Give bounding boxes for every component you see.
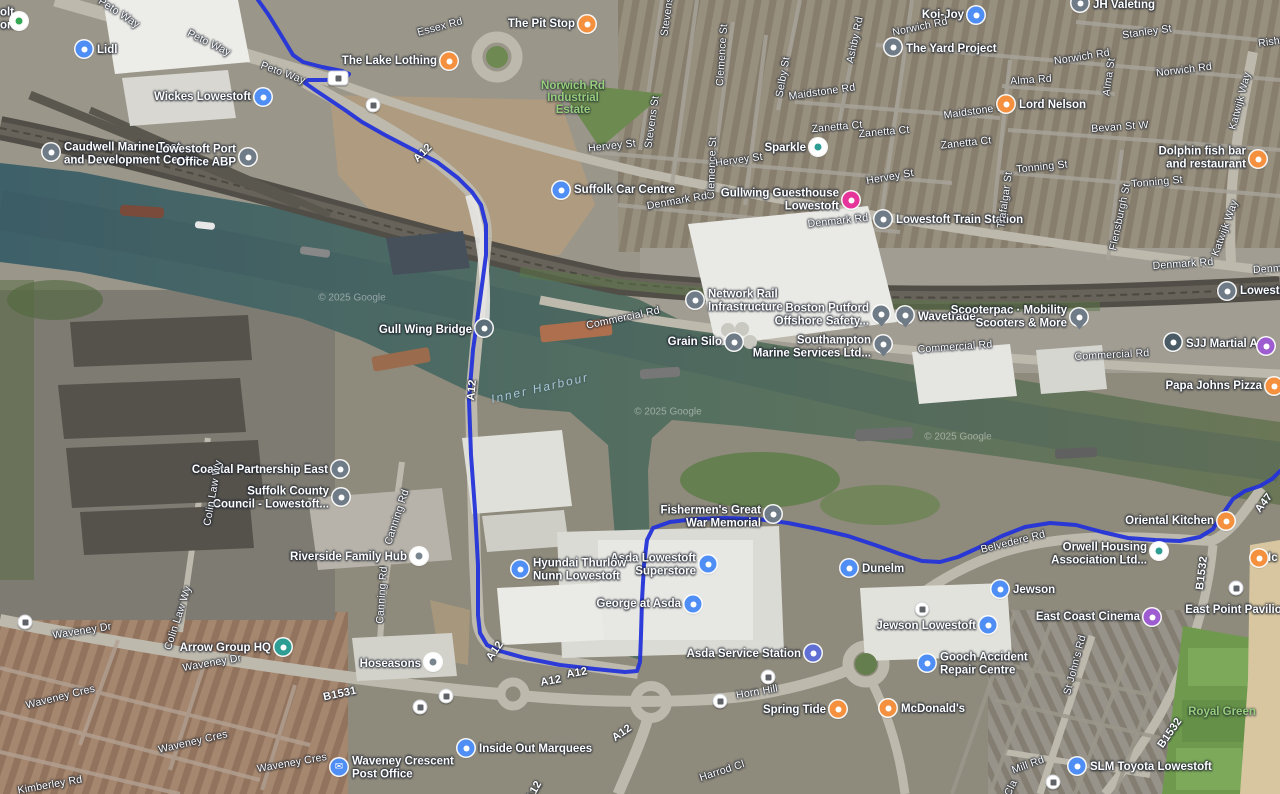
jewson-label-line: Jewson (1013, 584, 1055, 597)
lowestoft-port-office-abp-dot (245, 154, 251, 160)
hoseasons-icon[interactable] (425, 654, 442, 671)
jh-valeting-label-line: JH Valeting (1093, 0, 1155, 11)
speed-camera-icon[interactable] (366, 98, 381, 113)
road-label: Tonning St (1016, 158, 1069, 175)
lord-nelson-label[interactable]: Lord Nelson (1019, 99, 1086, 112)
route-shield-label: A12 (411, 141, 434, 164)
suffolk-county-council-label-line: Suffolk County (213, 486, 329, 499)
the-lake-lothing-dot (446, 58, 452, 64)
purple-store-dot (1263, 343, 1269, 349)
ice-cream-edge-dot (1256, 555, 1262, 561)
riverside-family-hub-dot (416, 553, 423, 560)
road-label: Canning Rd (382, 488, 411, 546)
dunelm-dot (846, 565, 852, 571)
road-label: Norwich Rd (1155, 61, 1212, 80)
water-body-label: Inner Harbour (490, 370, 591, 406)
sparkle-dot (815, 144, 822, 151)
ice-cream-edge-label[interactable]: Ic (1268, 552, 1278, 565)
arrow-group-hq-label-line: Arrow Group HQ (180, 642, 271, 655)
lord-nelson-dot (1003, 101, 1009, 107)
road-label: Hervey St (588, 138, 637, 155)
lidl-dot (81, 46, 87, 52)
road-label: Ashby Rd (844, 16, 866, 65)
bus-stop-icon[interactable] (713, 694, 728, 709)
grain-silo-label-line: Grain Silo (668, 336, 722, 349)
road-label: Mill Rd (1010, 754, 1046, 777)
suffolk-county-council-icon[interactable] (333, 489, 350, 506)
bus-stop-icon-glyph (717, 698, 723, 704)
hoseasons-dot (430, 659, 437, 666)
waveney-crescent-post-office-glyph: ✉ (335, 762, 343, 772)
road-label: Waveney Dr (52, 620, 113, 641)
wickes-lowestoft-icon[interactable] (255, 89, 272, 106)
suffolk-car-centre-label[interactable]: Suffolk Car Centre (574, 184, 675, 197)
road-label: Norwich Rd (891, 15, 949, 38)
orwell-housing-association-icon[interactable] (1151, 543, 1168, 560)
lidl-label[interactable]: Lidl (97, 44, 117, 57)
arrow-group-hq-label[interactable]: Arrow Group HQ (180, 642, 271, 655)
asda-lowestoft-superstore-dot (705, 561, 711, 567)
gullwing-guesthouse-label[interactable]: Gullwing GuesthouseLowestoft (721, 188, 839, 213)
hyundai-thurlow-nunn-label[interactable]: Hyundai ThurlowNunn Lowestoft (533, 558, 626, 583)
purple-store-icon[interactable] (1258, 338, 1275, 355)
asda-service-station-label-line: Asda Service Station (687, 648, 801, 661)
road-label: Peto Way (96, 0, 142, 31)
network-rail-infrastructure-label-line: Network Rail (708, 289, 783, 302)
gull-wing-bridge-dot (481, 325, 487, 331)
boston-putford-offshore-safety-label-line: Offshore Safety... (775, 315, 869, 328)
southampton-marine-services-label[interactable]: SouthamptonMarine Services Ltd... (753, 335, 871, 360)
orwell-housing-association-label-line: Association Ltd... (1051, 554, 1147, 567)
instavolt-charging-station-icon[interactable] (11, 13, 28, 30)
suffolk-car-centre-dot (558, 187, 564, 193)
boston-putford-offshore-safety-label[interactable]: Boston PutfordOffshore Safety... (775, 303, 869, 328)
road-label: Canning Rd (374, 566, 390, 624)
gooch-accident-repair-centre-label[interactable]: Gooch AccidentRepair Centre (940, 652, 1028, 677)
road-label: Waveney Dr (182, 652, 243, 674)
lowestoft-edge-dot (1224, 288, 1230, 294)
lowestoft-edge-icon[interactable] (1219, 283, 1236, 300)
sjj-martial-arts-dot (1170, 339, 1176, 345)
inside-out-marquees-dot (463, 745, 469, 751)
bus-stop-icon[interactable] (439, 689, 454, 704)
fishermens-great-war-memorial-dot (770, 511, 776, 517)
lowestoft-port-office-abp-label-line: Lowestoft Port (156, 144, 237, 157)
road-label: Tonning St (1131, 174, 1183, 190)
route-shield-label: B1531 (322, 685, 358, 704)
inside-out-marquees-label-line: Inside Out Marquees (479, 743, 592, 756)
east-point-pavilion-label[interactable]: East Point Pavilion (1185, 604, 1280, 617)
road-label: Katwijk Way (1209, 198, 1240, 258)
asda-service-station-label[interactable]: Asda Service Station (687, 648, 801, 661)
road-label: Alma Rd (1010, 73, 1052, 88)
gullwing-guesthouse-label-line: Lowestoft (721, 200, 839, 213)
road-label: Stevens St (658, 0, 677, 37)
asda-service-station-icon[interactable] (805, 645, 822, 662)
route-shield-label: A12 (465, 379, 479, 401)
road-label: Hervey St (865, 167, 914, 187)
road-label: Cla (1002, 778, 1020, 794)
george-at-asda-label-line: George at Asda (596, 598, 681, 611)
road-label: Commercial Rd (917, 338, 993, 355)
road-label: Rishton Rd (1257, 30, 1280, 49)
gull-wing-bridge-icon[interactable] (476, 320, 493, 337)
slm-toyota-lowestoft-label[interactable]: SLM Toyota Lowestoft (1090, 761, 1212, 774)
road-label: Peto Way (259, 59, 307, 86)
east-coast-cinema-label[interactable]: East Coast Cinema (1036, 611, 1140, 624)
bus-stop-icon-glyph (1050, 779, 1056, 785)
papa-johns-pizza-label-line: Papa Johns Pizza (1165, 380, 1262, 393)
scooterpac-mobility-scooters-icon[interactable] (1071, 309, 1088, 326)
suffolk-car-centre-label-line: Suffolk Car Centre (574, 184, 675, 197)
sparkle-label[interactable]: Sparkle (764, 142, 806, 155)
road-label: Alma St (1100, 57, 1117, 96)
spring-tide-label-line: Spring Tide (763, 704, 826, 717)
scooterpac-mobility-scooters-label[interactable]: Scooterpac · MobilityScooters & More (951, 305, 1067, 330)
map-labels-layer: oltonLidlWickes LowestoftCaudwell Marine… (0, 0, 1280, 794)
google-attribution-watermark: © 2025 Google (634, 407, 701, 418)
route-shield-label: B1532 (1155, 716, 1184, 751)
gull-wing-bridge-label-line: Gull Wing Bridge (379, 324, 472, 337)
road-label: Denmark Rd (807, 212, 869, 230)
boston-putford-offshore-safety-dot (878, 311, 884, 317)
suffolk-county-council-dot (338, 494, 344, 500)
wavetrade-dot (902, 312, 908, 318)
hoseasons-label-line: Hoseasons (360, 658, 421, 671)
oriental-kitchen-label-line: Oriental Kitchen (1125, 515, 1214, 528)
lowestoft-train-station-icon[interactable] (875, 211, 892, 228)
road-label: Bevan St W (1091, 119, 1149, 135)
slm-toyota-lowestoft-dot (1074, 763, 1080, 769)
hyundai-thurlow-nunn-label-line: Hyundai Thurlow (533, 558, 626, 571)
google-attribution-watermark: © 2025 Google (318, 293, 385, 304)
east-point-pavilion-label-line: East Point Pavilion (1185, 604, 1280, 617)
dolphin-fish-bar-dot (1255, 156, 1261, 162)
gull-wing-bridge-label[interactable]: Gull Wing Bridge (379, 324, 472, 337)
road-label: Zanetta Ct (858, 124, 910, 140)
jh-valeting-label[interactable]: JH Valeting (1093, 0, 1155, 11)
sparkle-icon[interactable] (810, 139, 827, 156)
gullwing-guesthouse-dot (848, 197, 854, 203)
road-label: Commercial Rd (585, 304, 661, 331)
grain-silo-label[interactable]: Grain Silo (668, 336, 722, 349)
norwich-rd-industrial-estate-area-label: Norwich RdIndustrialEstate (541, 80, 605, 116)
road-label: Essex Rd (416, 15, 464, 39)
road-label: Denmark Rd (1152, 256, 1214, 272)
gullwing-guesthouse-label-line: Gullwing Guesthouse (721, 188, 839, 201)
gooch-accident-repair-centre-icon[interactable] (919, 655, 936, 672)
the-yard-project-label[interactable]: The Yard Project (906, 43, 997, 56)
lidl-icon[interactable] (76, 41, 93, 58)
lowestoft-port-office-abp-label-line: Office ABP (156, 156, 237, 169)
spring-tide-label[interactable]: Spring Tide (763, 704, 826, 717)
ice-cream-edge-icon[interactable] (1251, 550, 1268, 567)
bus-stop-icon[interactable] (1229, 581, 1244, 596)
papa-johns-pizza-icon[interactable] (1266, 378, 1280, 395)
level-crossing-icon-glyph (335, 75, 341, 81)
lowestoft-port-office-abp-label[interactable]: Lowestoft PortOffice ABP (156, 144, 237, 169)
bus-stop-icon-glyph (22, 619, 28, 625)
inside-out-marquees-icon[interactable] (458, 740, 475, 757)
dolphin-fish-bar-label[interactable]: Dolphin fish barand restaurant (1158, 146, 1246, 171)
sparkle-label-line: Sparkle (764, 142, 806, 155)
route-shield-label: A12 (610, 722, 634, 744)
jh-valeting-dot (1077, 0, 1083, 6)
the-pit-stop-dot (584, 21, 590, 27)
ice-cream-edge-label-line: Ic (1268, 552, 1278, 565)
inside-out-marquees-label[interactable]: Inside Out Marquees (479, 743, 592, 756)
road-label: Peto Way (185, 27, 232, 58)
grain-silo-dot (731, 339, 737, 345)
road-label: Katwijk Way (1227, 71, 1254, 131)
bus-stop-icon[interactable] (761, 670, 776, 685)
riverside-family-hub-label-line: Riverside Family Hub (290, 551, 407, 564)
scooterpac-mobility-scooters-label-line: Scooters & More (951, 317, 1067, 330)
scooterpac-mobility-scooters-label-line: Scooterpac · Mobility (951, 305, 1067, 318)
road-label: Maidstone Rd (788, 81, 856, 102)
boston-putford-offshore-safety-label-line: Boston Putford (775, 303, 869, 316)
route-shield-label: A12 (524, 779, 545, 794)
bus-stop-icon-glyph (417, 704, 423, 710)
arrow-group-hq-dot (280, 644, 286, 650)
fishermens-great-war-memorial-label[interactable]: Fishermen's GreatWar Memorial (660, 505, 761, 530)
royal-green-area-label: Royal Green (1188, 706, 1256, 718)
road-label: Denmark Rd (1253, 260, 1280, 276)
road-label: Kimberley Rd (17, 773, 84, 794)
george-at-asda-label[interactable]: George at Asda (596, 598, 681, 611)
road-label: Horn Hill (735, 682, 779, 701)
southampton-marine-services-icon[interactable] (875, 336, 892, 353)
jewson-icon[interactable] (992, 581, 1009, 598)
the-pit-stop-label-line: The Pit Stop (508, 18, 575, 31)
hyundai-thurlow-nunn-icon[interactable] (512, 561, 529, 578)
waveney-crescent-post-office-icon[interactable]: ✉ (331, 759, 348, 776)
bus-stop-icon[interactable] (18, 615, 33, 630)
google-attribution-watermark: © 2025 Google (924, 432, 991, 443)
instavolt-charging-station-dot (16, 18, 23, 25)
koi-joy-dot (973, 12, 979, 18)
gooch-accident-repair-centre-label-line: Repair Centre (940, 664, 1028, 677)
wickes-lowestoft-dot (260, 94, 266, 100)
east-coast-cinema-dot (1149, 614, 1155, 620)
the-pit-stop-label[interactable]: The Pit Stop (508, 18, 575, 31)
southampton-marine-services-label-line: Southampton (753, 335, 871, 348)
dunelm-icon[interactable] (841, 560, 858, 577)
road-label: Waveney Cres (25, 683, 97, 712)
fishermens-great-war-memorial-label-line: Fishermen's Great (660, 505, 761, 518)
oriental-kitchen-dot (1223, 518, 1229, 524)
bus-stop-icon-glyph (919, 606, 925, 612)
lord-nelson-icon[interactable] (998, 96, 1015, 113)
riverside-family-hub-icon[interactable] (411, 548, 428, 565)
lowestoft-edge-label[interactable]: Lowestoft (1240, 285, 1280, 298)
grain-silo-icon[interactable] (726, 334, 743, 351)
george-at-asda-dot (690, 601, 696, 607)
riverside-family-hub-label[interactable]: Riverside Family Hub (290, 551, 407, 564)
the-yard-project-label-line: The Yard Project (906, 43, 997, 56)
bus-stop-icon-glyph (443, 693, 449, 699)
waveney-crescent-post-office-label-line: Waveney Crescent (352, 756, 454, 769)
spring-tide-icon[interactable] (830, 701, 847, 718)
coastal-partnership-east-icon[interactable] (332, 461, 349, 478)
level-crossing-icon[interactable] (328, 71, 349, 86)
southampton-marine-services-label-line: Marine Services Ltd... (753, 347, 871, 360)
route-shield-label: A12 (566, 665, 589, 680)
fishermens-great-war-memorial-label-line: War Memorial (660, 517, 761, 530)
wickes-lowestoft-label[interactable]: Wickes Lowestoft (154, 91, 251, 104)
koi-joy-icon[interactable] (968, 7, 985, 24)
bus-stop-icon[interactable] (1046, 775, 1061, 790)
boston-putford-offshore-safety-icon[interactable] (873, 306, 890, 323)
jewson-lowestoft-dot (985, 622, 991, 628)
fishermens-great-war-memorial-icon[interactable] (765, 506, 782, 523)
gullwing-guesthouse-icon[interactable] (843, 192, 860, 209)
road-label: Norwich Rd (1053, 47, 1110, 68)
east-coast-cinema-icon[interactable] (1144, 609, 1161, 626)
jewson-lowestoft-label-line: Jewson Lowestoft (876, 620, 976, 633)
the-lake-lothing-label-line: The Lake Lothing (342, 55, 437, 68)
lord-nelson-label-line: Lord Nelson (1019, 99, 1086, 112)
bus-stop-icon[interactable] (413, 700, 428, 715)
wickes-lowestoft-label-line: Wickes Lowestoft (154, 91, 251, 104)
dunelm-label-line: Dunelm (862, 563, 904, 576)
norwich-rd-industrial-estate-line: Estate (541, 104, 605, 116)
east-coast-cinema-label-line: East Coast Cinema (1036, 611, 1140, 624)
hyundai-thurlow-nunn-dot (517, 566, 523, 572)
royal-green-line: Royal Green (1188, 706, 1256, 718)
the-yard-project-dot (890, 44, 896, 50)
bus-stop-icon[interactable] (915, 602, 930, 617)
bus-stop-icon-glyph (765, 674, 771, 680)
jewson-label[interactable]: Jewson (1013, 584, 1055, 597)
norwich-rd-industrial-estate-line: Industrial (541, 92, 605, 104)
lowestoft-train-station-dot (880, 216, 886, 222)
waveney-crescent-post-office-label-line: Post Office (352, 768, 454, 781)
suffolk-county-council-label[interactable]: Suffolk CountyCouncil - Lowestoft... (213, 486, 329, 511)
route-shield-label: A47 (1253, 491, 1275, 515)
asda-service-station-dot (810, 650, 816, 656)
spring-tide-dot (835, 706, 841, 712)
road-label: Stevens St (642, 95, 661, 149)
jewson-lowestoft-label[interactable]: Jewson Lowestoft (876, 620, 976, 633)
orwell-housing-association-dot (1156, 548, 1163, 555)
arrow-group-hq-icon[interactable] (275, 639, 292, 656)
road-label: Hervey St (714, 151, 763, 170)
papa-johns-pizza-label[interactable]: Papa Johns Pizza (1165, 380, 1262, 393)
oriental-kitchen-label[interactable]: Oriental Kitchen (1125, 515, 1214, 528)
coastal-partnership-east-dot (337, 466, 343, 472)
dolphin-fish-bar-label-line: Dolphin fish bar (1158, 146, 1246, 159)
route-shield-label: A12 (540, 673, 563, 688)
lowestoft-edge-label-line: Lowestoft (1240, 285, 1280, 298)
mcdonalds-label-line: McDonald's (901, 703, 965, 716)
lidl-label-line: Lidl (97, 44, 117, 57)
scooterpac-mobility-scooters-dot (1076, 314, 1082, 320)
slm-toyota-lowestoft-label-line: SLM Toyota Lowestoft (1090, 761, 1212, 774)
asda-lowestoft-superstore-icon[interactable] (700, 556, 717, 573)
the-pit-stop-icon[interactable] (579, 16, 596, 33)
bus-stop-icon-glyph (1233, 585, 1239, 591)
oriental-kitchen-icon[interactable] (1218, 513, 1235, 530)
road-label: St John's Rd (1061, 634, 1089, 697)
road-label: Stanley St (1121, 23, 1172, 42)
orwell-housing-association-label-line: Orwell Housing (1051, 542, 1147, 555)
road-label: Zanetta Ct (940, 134, 992, 151)
road-label: Zanetta Ct (811, 119, 863, 135)
dolphin-fish-bar-label-line: and restaurant (1158, 158, 1246, 171)
road-label: Belvedere Rd (980, 528, 1047, 556)
mcdonalds-dot (885, 705, 891, 711)
road-label: Harrod Cl (698, 758, 746, 784)
suffolk-car-centre-icon[interactable] (553, 182, 570, 199)
gooch-accident-repair-centre-dot (924, 660, 930, 666)
orwell-housing-association-label[interactable]: Orwell HousingAssociation Ltd... (1051, 542, 1147, 567)
suffolk-county-council-label-line: Council - Lowestoft... (213, 498, 329, 511)
jewson-lowestoft-icon[interactable] (980, 617, 997, 634)
road-label: Flensburgh St (1107, 183, 1133, 252)
road-label: Commercial Rd (1074, 347, 1149, 363)
the-yard-project-icon[interactable] (885, 39, 902, 56)
mcdonalds-label[interactable]: McDonald's (901, 703, 965, 716)
road-label: Waveney Cres (256, 751, 328, 775)
the-lake-lothing-label[interactable]: The Lake Lothing (342, 55, 437, 68)
george-at-asda-icon[interactable] (685, 596, 702, 613)
network-rail-infrastructure-icon[interactable] (687, 292, 704, 309)
southampton-marine-services-dot (880, 341, 886, 347)
lowestoft-port-office-abp-icon[interactable] (240, 149, 257, 166)
road-label: Clemence St (714, 24, 730, 87)
google-maps-satellite-view[interactable]: oltonLidlWickes LowestoftCaudwell Marine… (0, 0, 1280, 794)
network-rail-infrastructure-label[interactable]: Network RailInfrastructure (708, 289, 783, 314)
route-shield-label: B1532 (1194, 555, 1210, 590)
sjj-martial-arts-icon[interactable] (1165, 334, 1182, 351)
slm-toyota-lowestoft-icon[interactable] (1069, 758, 1086, 775)
norwich-rd-industrial-estate-line: Norwich Rd (541, 80, 605, 92)
the-lake-lothing-icon[interactable] (441, 53, 458, 70)
papa-johns-pizza-dot (1271, 383, 1277, 389)
waveney-crescent-post-office-label[interactable]: Waveney CrescentPost Office (352, 756, 454, 781)
network-rail-infrastructure-dot (692, 297, 698, 303)
hyundai-thurlow-nunn-label-line: Nunn Lowestoft (533, 570, 626, 583)
hoseasons-label[interactable]: Hoseasons (360, 658, 421, 671)
dolphin-fish-bar-icon[interactable] (1250, 151, 1267, 168)
route-shield-label: A12 (484, 639, 506, 663)
jh-valeting-icon[interactable] (1072, 0, 1089, 12)
speed-camera-icon-glyph (370, 102, 376, 108)
gooch-accident-repair-centre-label-line: Gooch Accident (940, 652, 1028, 665)
road-label: Waveney Cres (157, 728, 229, 756)
dunelm-label[interactable]: Dunelm (862, 563, 904, 576)
network-rail-infrastructure-label-line: Infrastructure (708, 301, 783, 314)
wavetrade-icon[interactable] (897, 307, 914, 324)
caudwell-marine-test-dot (48, 149, 54, 155)
caudwell-marine-test-icon[interactable] (43, 144, 60, 161)
mcdonalds-icon[interactable] (880, 700, 897, 717)
jewson-dot (997, 586, 1003, 592)
